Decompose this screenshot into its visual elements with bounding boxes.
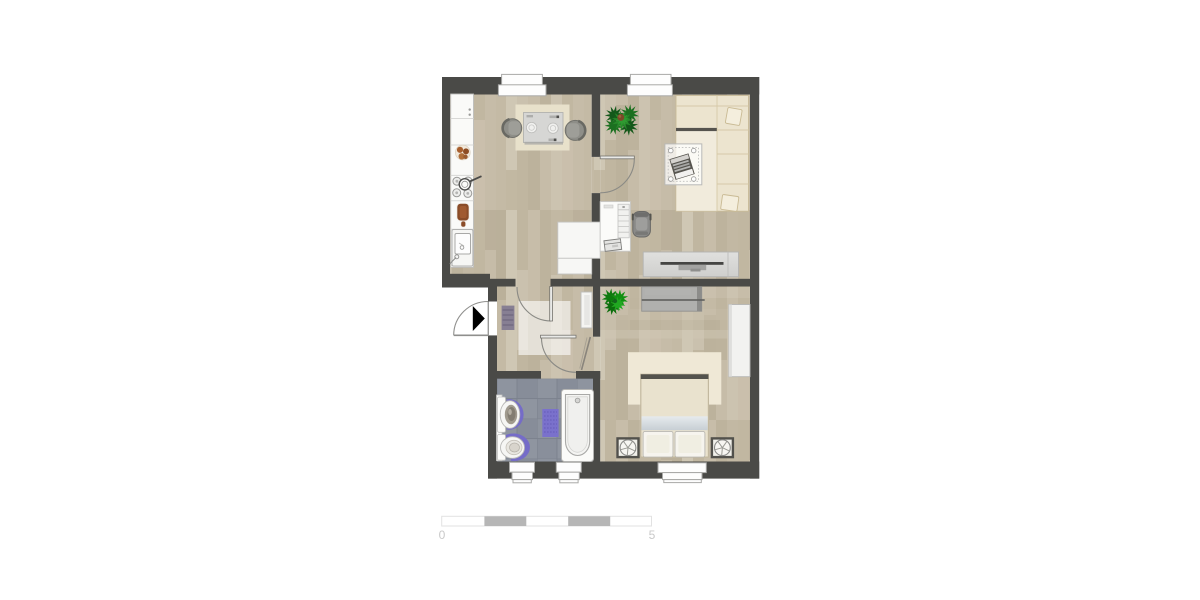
- svg-text:5: 5: [649, 528, 656, 542]
- svg-text:0: 0: [439, 528, 446, 542]
